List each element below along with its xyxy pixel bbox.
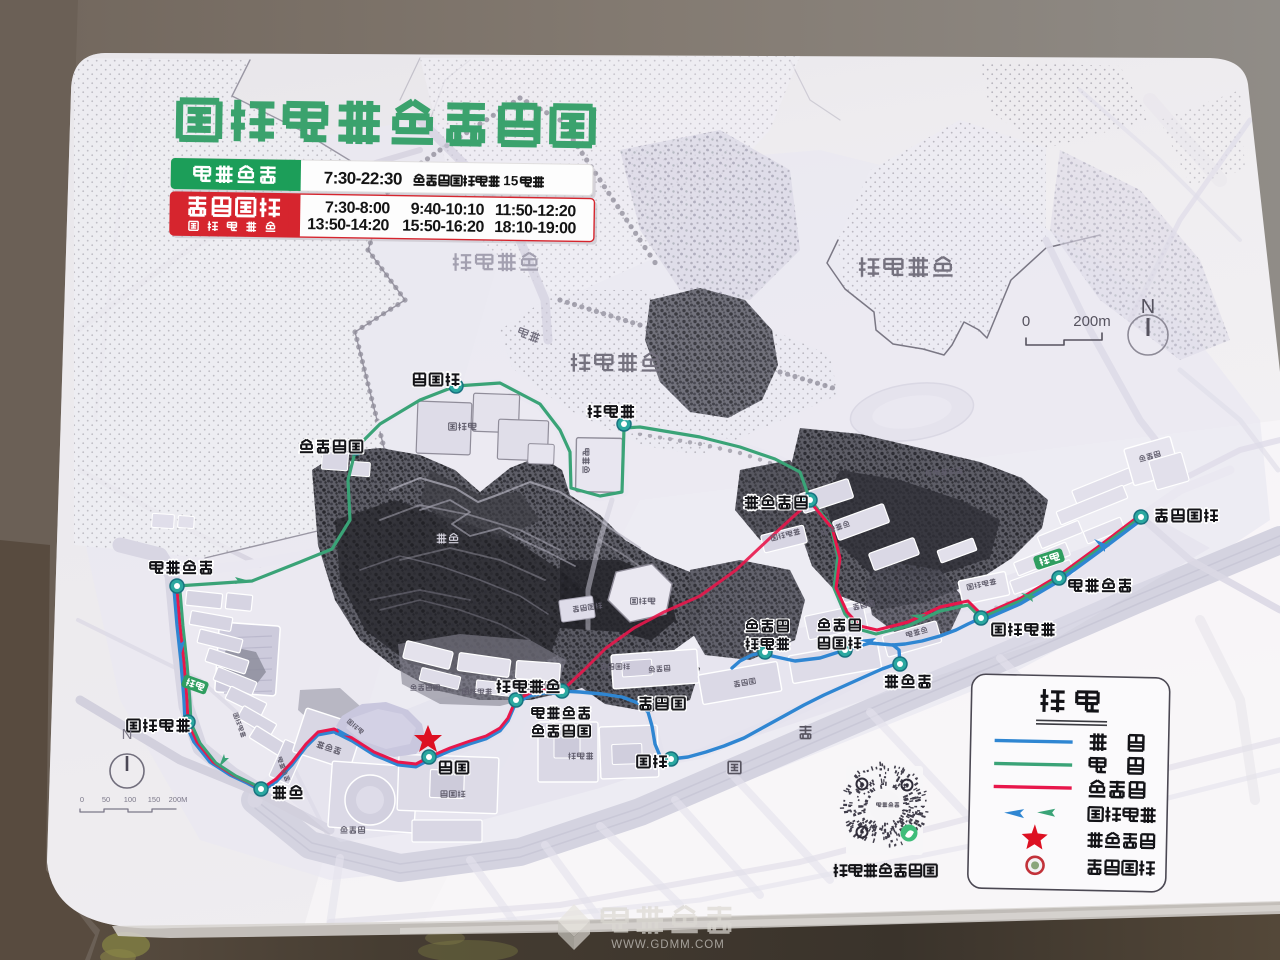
svg-text:200M: 200M [169, 795, 188, 804]
svg-text:200m: 200m [1073, 313, 1111, 330]
svg-text:WWW.GDMM.COM: WWW.GDMM.COM [611, 939, 725, 951]
svg-text:15: 15 [503, 173, 519, 188]
svg-text:50: 50 [102, 795, 110, 804]
svg-text:150: 150 [148, 795, 161, 804]
svg-text:13:50-14:20: 13:50-14:20 [307, 216, 390, 234]
svg-text:0: 0 [1022, 313, 1030, 330]
svg-text:0: 0 [80, 795, 84, 804]
svg-text:9:40-10:10: 9:40-10:10 [411, 201, 485, 219]
svg-text:11:50-12:20: 11:50-12:20 [495, 202, 577, 220]
svg-text:100: 100 [124, 795, 137, 804]
svg-text:15:50-16:20: 15:50-16:20 [402, 218, 485, 236]
svg-text:7:30-8:00: 7:30-8:00 [325, 199, 391, 217]
svg-text:18:10-19:00: 18:10-19:00 [494, 219, 577, 237]
svg-text:N: N [122, 726, 133, 743]
svg-text:7:30-22:30: 7:30-22:30 [324, 168, 402, 188]
